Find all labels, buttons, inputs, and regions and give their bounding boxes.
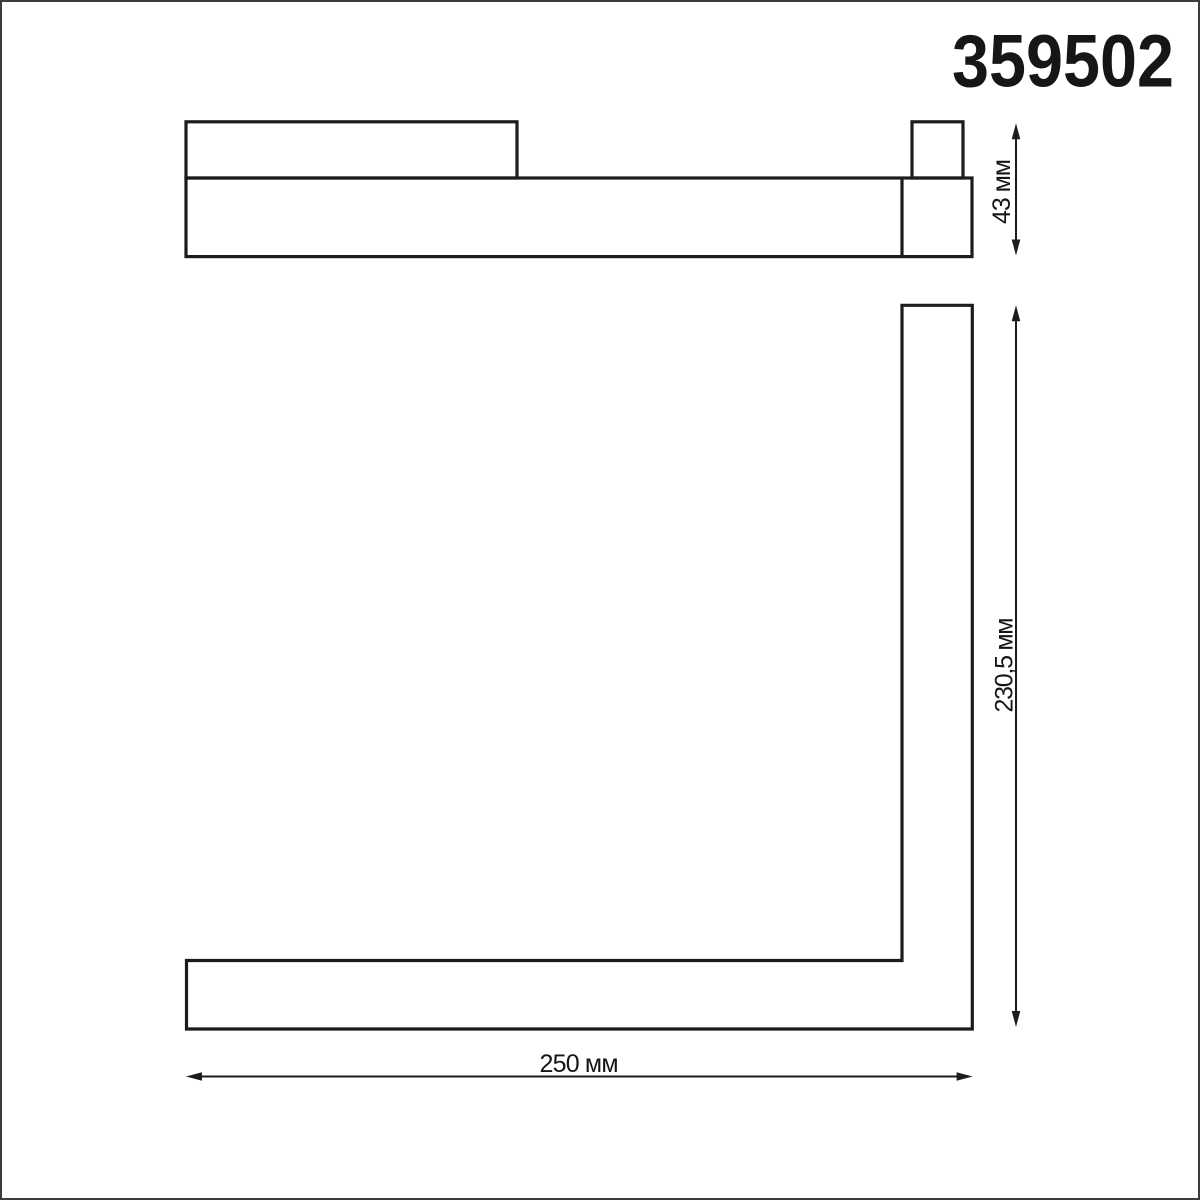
svg-text:250 мм: 250 мм: [540, 1050, 619, 1078]
svg-text:43 мм: 43 мм: [988, 159, 1016, 224]
svg-text:230,5 мм: 230,5 мм: [991, 618, 1019, 713]
svg-text:359502: 359502: [952, 20, 1174, 103]
